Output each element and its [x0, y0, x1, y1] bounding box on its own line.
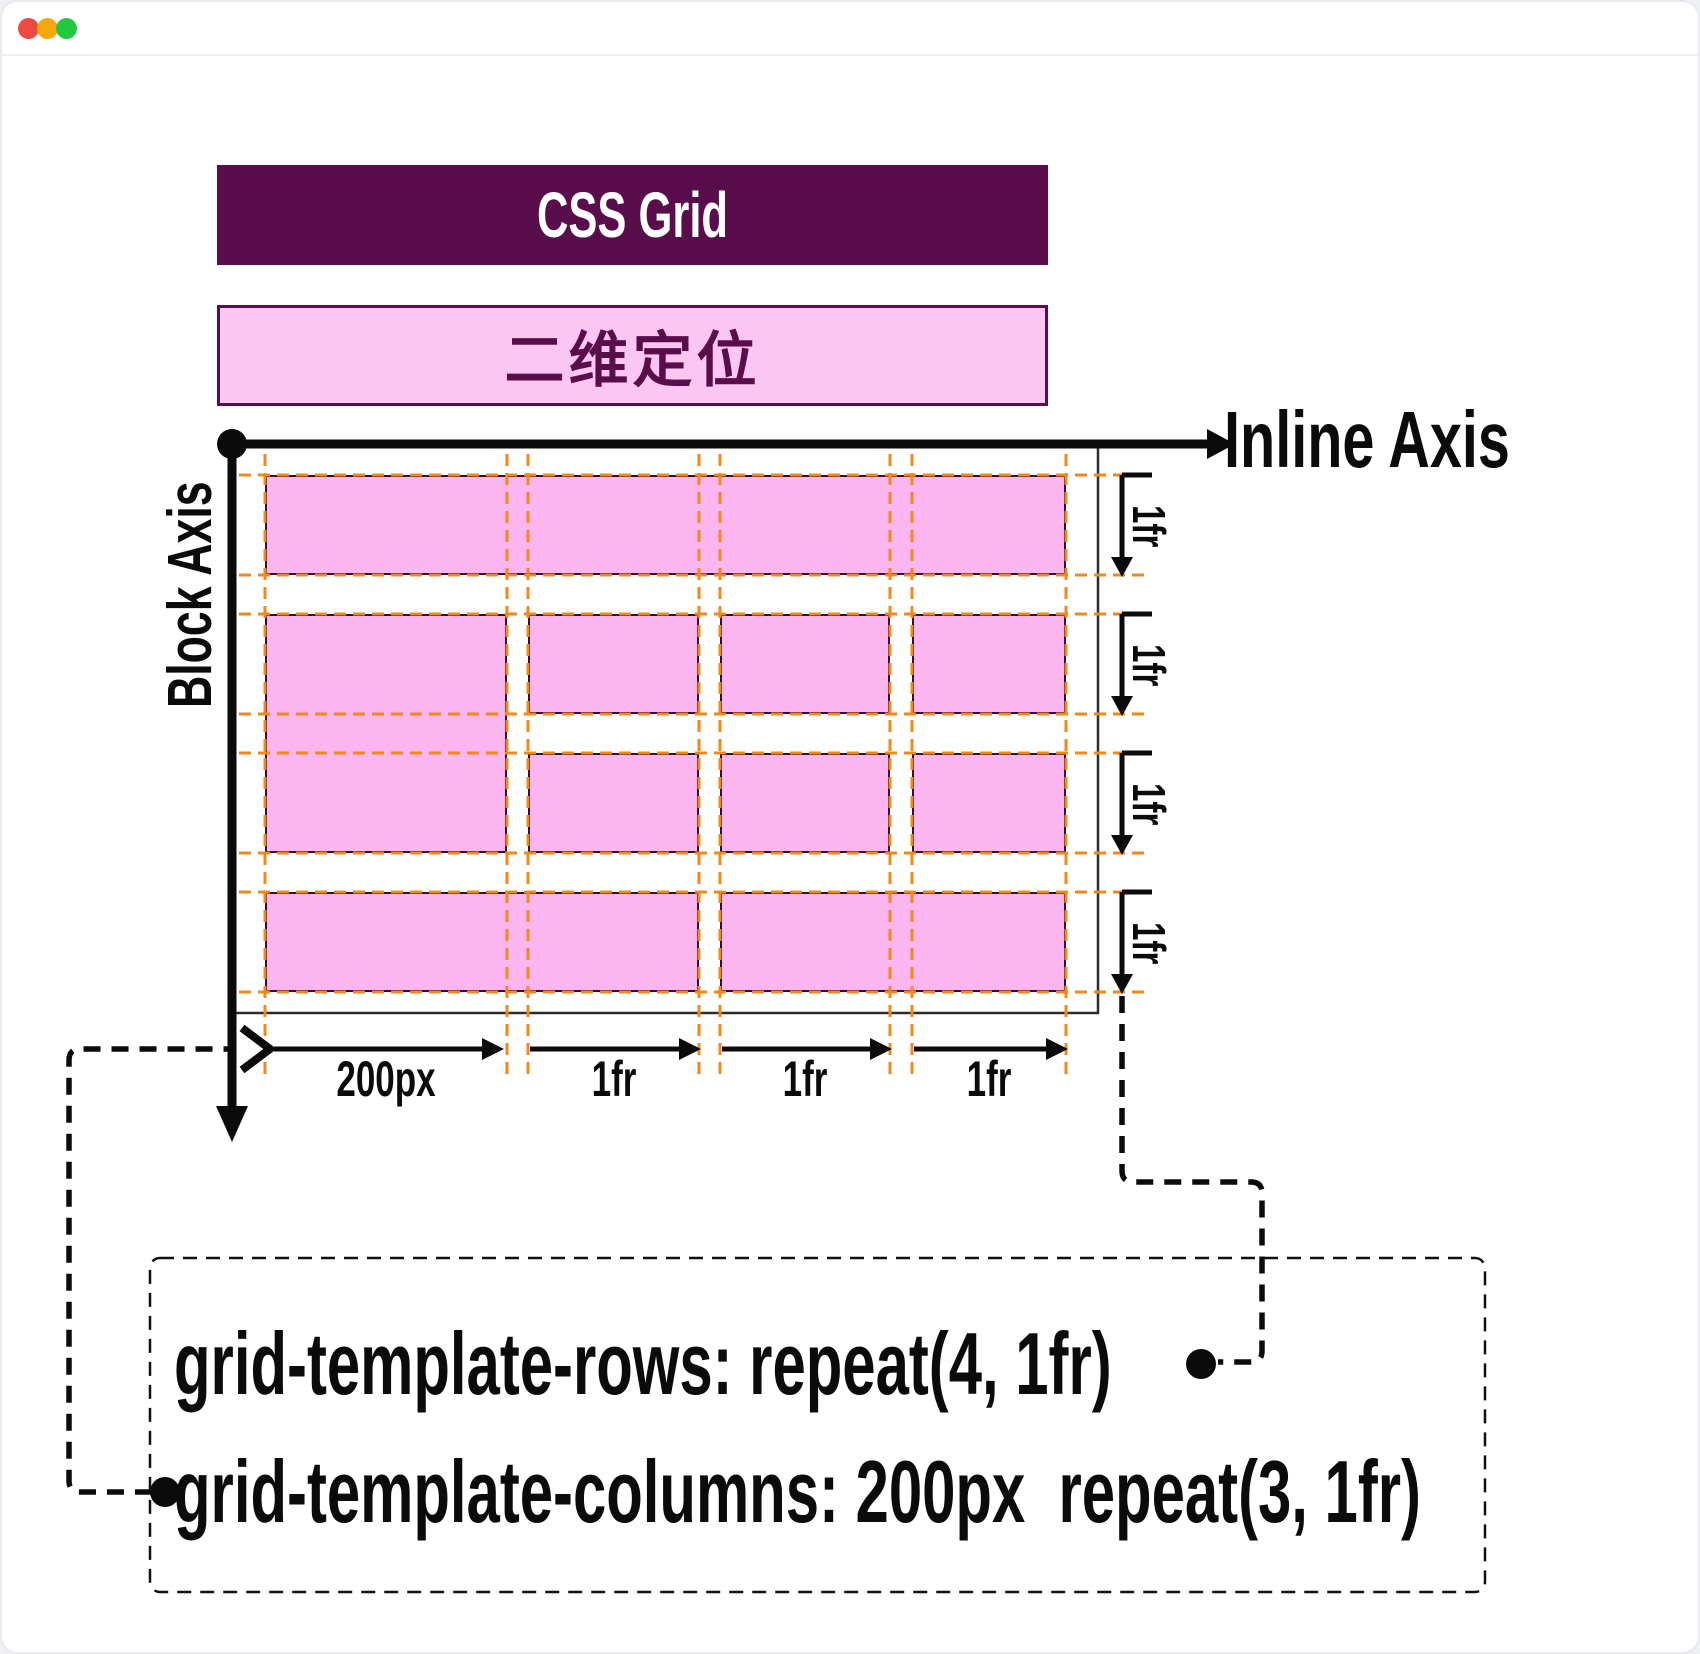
grid-item-r3c3	[720, 753, 890, 853]
columns-connector-chevron-icon	[242, 1028, 270, 1070]
row-track-label-2: 1fr	[1126, 644, 1172, 686]
code-line-rows: grid-template-rows: repeat(4, 1fr)	[174, 1320, 1112, 1408]
grid-item-r3c2	[528, 753, 699, 853]
grid-item-r3c4	[912, 753, 1066, 853]
block-axis-label: Block Axis	[160, 481, 222, 708]
grid-item-row4-cols3-4	[720, 892, 1066, 992]
block-axis-arrowhead-icon	[216, 1106, 248, 1142]
banner-title: CSS Grid	[537, 178, 728, 252]
app-window: CSS Grid 二维定位	[0, 0, 1700, 1654]
row-track-arrows	[1122, 475, 1152, 976]
row-track-label-1: 1fr	[1126, 505, 1172, 547]
code-box-border	[150, 1258, 1485, 1592]
grid-item-col1-rows2-3	[265, 614, 507, 853]
code-line-columns: grid-template-columns: 200px repeat(3, 1…	[174, 1448, 1421, 1536]
rows-connector-line	[1122, 996, 1262, 1362]
screenshot-canvas: CSS Grid 二维定位	[0, 0, 1700, 1654]
inline-axis	[217, 429, 1235, 459]
grid-item-r2c4	[912, 614, 1066, 714]
grid-item-r2c2	[528, 614, 699, 714]
grid-item-row4-cols1-2	[265, 892, 699, 992]
rows-connector-dot	[1186, 1349, 1216, 1379]
css-grid-banner: CSS Grid	[217, 165, 1048, 265]
banner-subtitle: 二维定位	[505, 312, 761, 399]
column-track-label-3: 1fr	[783, 1054, 828, 1104]
column-track-label-1: 200px	[336, 1054, 435, 1104]
columns-connector-line	[69, 1049, 230, 1492]
grid-item-row1-span-all	[265, 475, 1066, 575]
axis-origin-dot	[217, 429, 247, 459]
window-titlebar	[2, 2, 1698, 56]
close-button-icon[interactable]	[18, 18, 39, 39]
zoom-button-icon[interactable]	[56, 18, 77, 39]
subtitle-banner: 二维定位	[217, 305, 1048, 406]
row-track-label-3: 1fr	[1126, 783, 1172, 825]
column-track-label-4: 1fr	[967, 1054, 1012, 1104]
row-track-label-4: 1fr	[1126, 922, 1172, 964]
minimize-button-icon[interactable]	[37, 18, 58, 39]
inline-axis-label: Inline Axis	[1224, 396, 1510, 484]
column-track-label-2: 1fr	[592, 1054, 637, 1104]
grid-item-r2c3	[720, 614, 890, 714]
